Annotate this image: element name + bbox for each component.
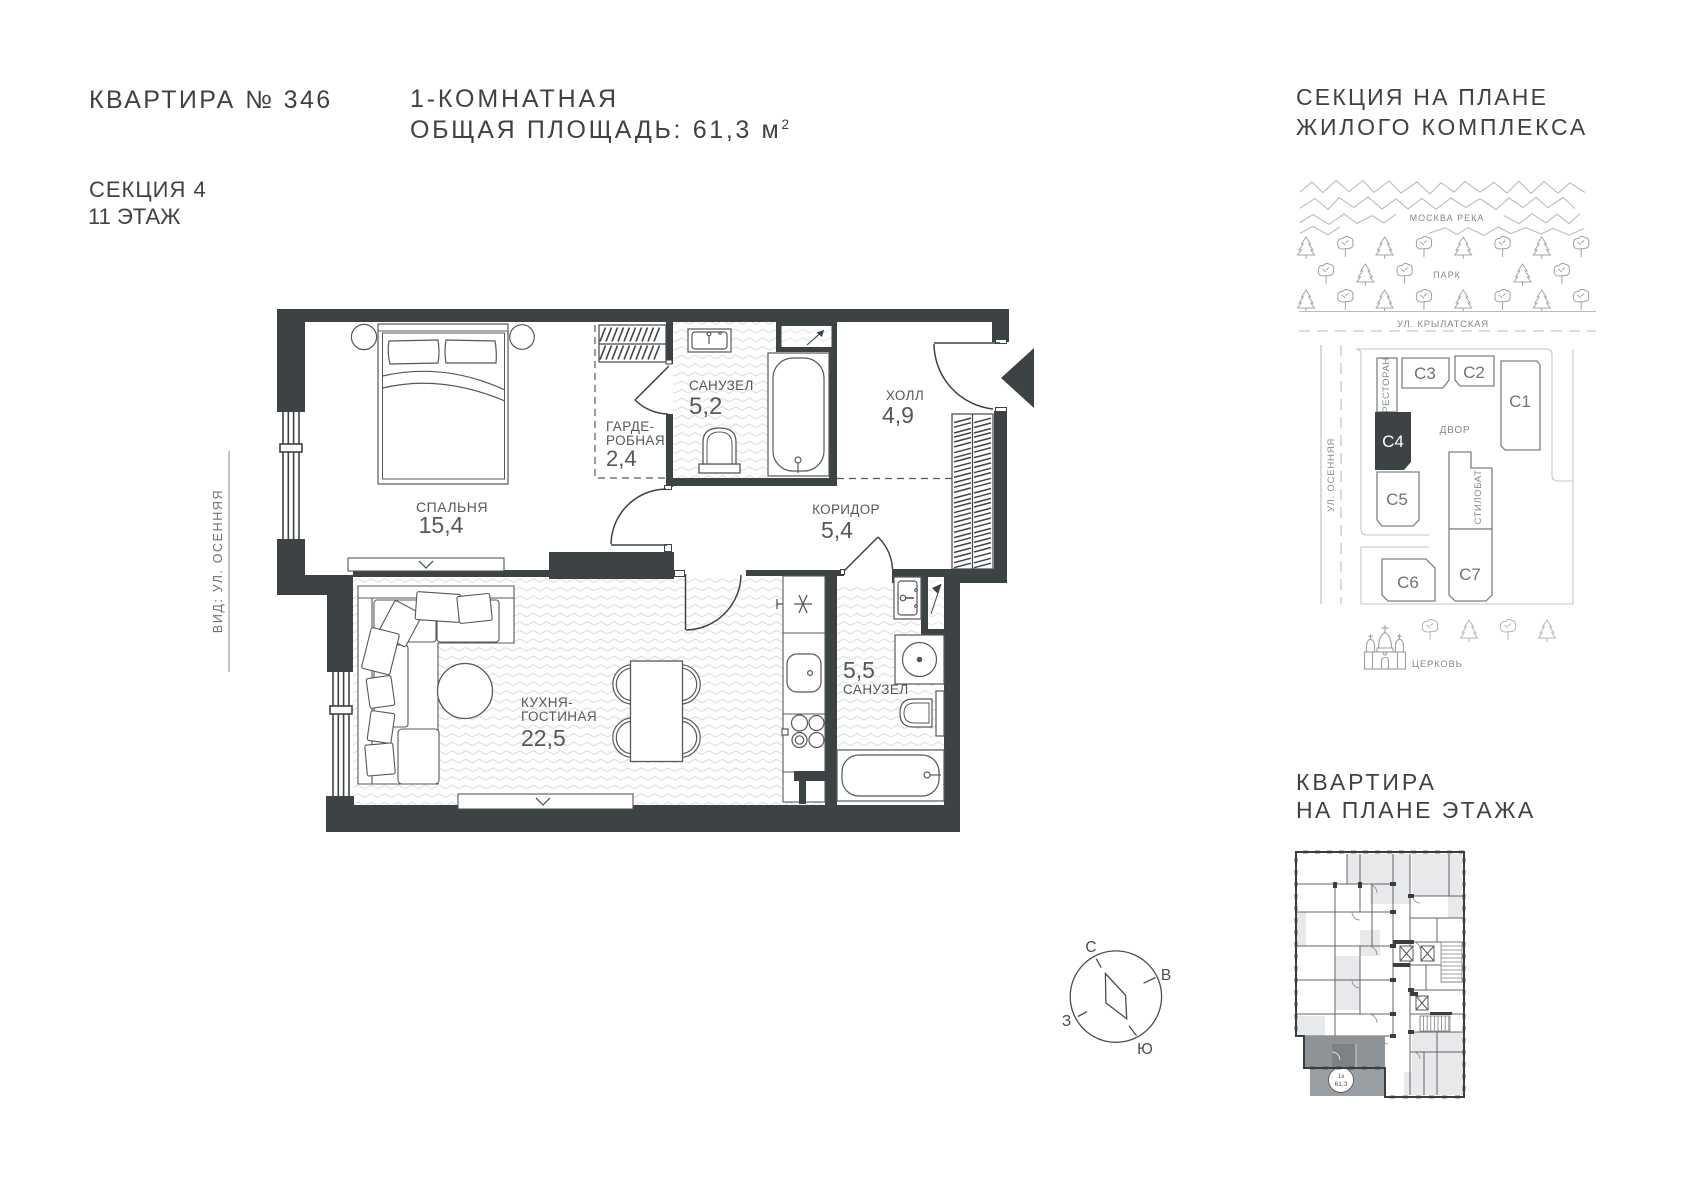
svg-text:ПАРК: ПАРК [1433, 270, 1461, 280]
svg-text:1к: 1к [1338, 1073, 1345, 1080]
svg-text:ЖИЛОГО КОМПЛЕКСА: ЖИЛОГО КОМПЛЕКСА [1296, 114, 1588, 140]
svg-text:КВАРТИРА: КВАРТИРА [1296, 769, 1437, 795]
svg-text:С2: С2 [1463, 363, 1485, 382]
svg-text:5,5: 5,5 [843, 657, 875, 683]
svg-text:УЛ. ОСЕННЯЯ: УЛ. ОСЕННЯЯ [1326, 438, 1337, 512]
svg-text:С1: С1 [1509, 392, 1531, 411]
svg-text:1-КОМНАТНАЯ: 1-КОМНАТНАЯ [410, 85, 619, 113]
svg-text:ОБЩАЯ ПЛОЩАДЬ: 61,3 м2: ОБЩАЯ ПЛОЩАДЬ: 61,3 м2 [410, 116, 789, 144]
svg-text:С5: С5 [1386, 490, 1408, 509]
svg-text:СТИЛОБАТ: СТИЛОБАТ [1473, 469, 1484, 524]
svg-text:ГОСТИНАЯ: ГОСТИНАЯ [521, 709, 597, 724]
svg-text:Ю: Ю [1137, 1041, 1153, 1058]
svg-text:НА ПЛАНЕ ЭТАЖА: НА ПЛАНЕ ЭТАЖА [1296, 797, 1536, 823]
svg-text:5,2: 5,2 [689, 393, 722, 420]
svg-text:КУХНЯ-: КУХНЯ- [521, 695, 573, 710]
svg-text:ХОЛЛ: ХОЛЛ [886, 388, 924, 403]
svg-text:15,4: 15,4 [419, 512, 464, 538]
svg-text:РЕСТОРАН: РЕСТОРАН [1381, 357, 1392, 413]
svg-text:КВАРТИРА № 346: КВАРТИРА № 346 [89, 86, 333, 114]
svg-text:УЛ. КРЫЛАТСКАЯ: УЛ. КРЫЛАТСКАЯ [1397, 319, 1489, 330]
svg-text:МОСКВА РЕКА: МОСКВА РЕКА [1410, 213, 1485, 223]
svg-text:11 ЭТАЖ: 11 ЭТАЖ [88, 204, 181, 229]
svg-text:СЕКЦИЯ 4: СЕКЦИЯ 4 [89, 177, 207, 202]
svg-text:В: В [1161, 967, 1171, 984]
svg-text:САНУЗЕЛ: САНУЗЕЛ [843, 682, 909, 697]
svg-text:ДВОР: ДВОР [1440, 425, 1471, 436]
svg-text:САНУЗЕЛ: САНУЗЕЛ [689, 378, 754, 393]
svg-text:5,4: 5,4 [821, 517, 853, 543]
svg-text:С6: С6 [1397, 573, 1419, 592]
svg-text:С7: С7 [1459, 565, 1481, 584]
svg-text:ГАРДЕ-: ГАРДЕ- [606, 419, 655, 434]
svg-text:61,3: 61,3 [1335, 1081, 1348, 1088]
svg-text:С4: С4 [1382, 432, 1404, 451]
svg-text:КОРИДОР: КОРИДОР [812, 502, 880, 517]
svg-text:С3: С3 [1414, 364, 1436, 383]
svg-text:З: З [1062, 1013, 1071, 1030]
svg-text:СЕКЦИЯ НА ПЛАНЕ: СЕКЦИЯ НА ПЛАНЕ [1296, 84, 1548, 110]
svg-text:ЦЕРКОВЬ: ЦЕРКОВЬ [1412, 659, 1463, 670]
svg-text:ВИД: УЛ. ОСЕННЯЯ: ВИД: УЛ. ОСЕННЯЯ [211, 489, 225, 633]
svg-text:2,4: 2,4 [606, 446, 637, 471]
svg-text:4,9: 4,9 [882, 402, 914, 428]
svg-text:С: С [1085, 939, 1096, 956]
svg-text:22,5: 22,5 [521, 725, 566, 751]
